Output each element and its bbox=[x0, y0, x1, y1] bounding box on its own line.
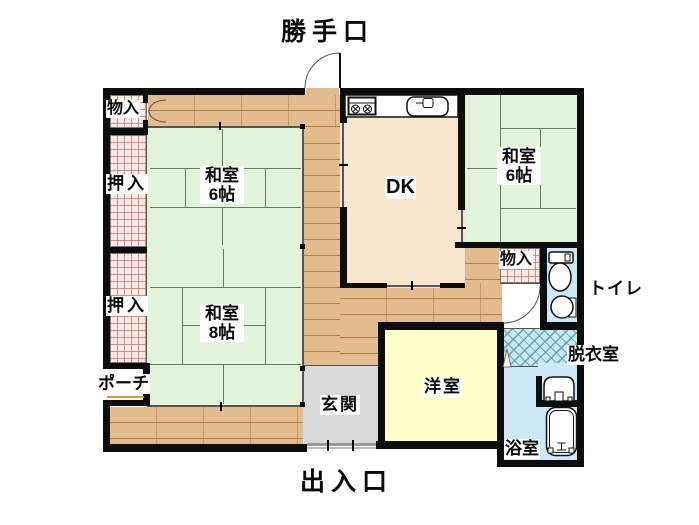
room-size: 6帖 bbox=[506, 166, 532, 185]
door-tick bbox=[219, 122, 221, 130]
wall-dk-bottom-a bbox=[340, 283, 387, 288]
door-tick bbox=[411, 281, 413, 290]
wall-basin-bottom bbox=[536, 400, 580, 407]
closet-lower-label: 押入 bbox=[106, 296, 148, 316]
wall-dk-left bbox=[340, 207, 347, 288]
wall-dk-right bbox=[458, 88, 465, 210]
entrance-sliding-door bbox=[307, 443, 376, 446]
room-size: 8帖 bbox=[209, 323, 235, 342]
corridor-genkan-floor bbox=[340, 322, 378, 365]
partition-line bbox=[147, 405, 303, 407]
wall-right bbox=[577, 88, 584, 467]
wall-storage-tl-right-a bbox=[143, 95, 148, 103]
wall-youshitsu-left bbox=[378, 322, 385, 449]
corridor-vertical-floor bbox=[303, 128, 340, 365]
wall-washitsu-right-bottom bbox=[455, 242, 584, 248]
washroom-door-swing-icon bbox=[503, 286, 540, 323]
storage-right-label: 物入 bbox=[499, 251, 533, 269]
corridor-mid-floor bbox=[340, 283, 502, 322]
wall-closet-divider bbox=[103, 247, 147, 253]
room-name: 和室 bbox=[205, 166, 239, 185]
engawa-bottom-floor bbox=[110, 407, 303, 444]
door-tick bbox=[339, 164, 348, 166]
wall-top-left bbox=[103, 88, 305, 95]
door-tick bbox=[457, 227, 466, 229]
corridor-right-floor bbox=[465, 248, 502, 283]
wall-bath-bottom bbox=[497, 460, 584, 467]
wall-bath-left bbox=[497, 322, 504, 467]
partition-line bbox=[500, 283, 540, 284]
closet-upper-label: 押入 bbox=[106, 174, 148, 194]
wall-storage-tl-bottom bbox=[103, 128, 147, 135]
porch-label: ポーチ bbox=[97, 374, 150, 394]
tatami-line bbox=[185, 168, 186, 207]
corridor-top-floor bbox=[148, 95, 340, 128]
junction-dot bbox=[300, 244, 305, 249]
tatami-line bbox=[467, 168, 500, 169]
tatami-line bbox=[222, 207, 223, 245]
wall-storage-tl-right-b bbox=[143, 120, 148, 135]
toilet-label: トイレ bbox=[588, 279, 644, 299]
washitsu-left-6-label: 和室 6帖 bbox=[200, 166, 244, 204]
partition-line bbox=[148, 126, 303, 128]
toilet-floor bbox=[547, 248, 577, 330]
tatami-line bbox=[150, 364, 301, 365]
junction-dot bbox=[300, 402, 305, 407]
genkan-label: 玄関 bbox=[320, 395, 360, 415]
door-tick bbox=[327, 440, 329, 451]
genkan-step-line bbox=[303, 365, 379, 366]
room-name: 和室 bbox=[205, 304, 239, 323]
wall-dk-left-stub bbox=[340, 95, 347, 123]
tatami-line bbox=[265, 287, 266, 364]
junction-dot bbox=[300, 366, 305, 371]
youshitsu-label: 洋室 bbox=[423, 377, 463, 397]
wall-basin-left bbox=[536, 376, 542, 403]
back-door-label: 勝手口 bbox=[281, 12, 374, 48]
tatami-line bbox=[223, 364, 224, 404]
storage-top-left-label: 物入 bbox=[106, 100, 140, 118]
tatami-line bbox=[223, 249, 224, 287]
floor-plan: 勝手口 出入口 物入 押入 押入 ポーチ 和室 6帖 和室 8帖 和室 6帖 D… bbox=[0, 0, 699, 525]
tatami-line bbox=[500, 128, 576, 129]
wall-bottom-youshitsu bbox=[376, 441, 504, 449]
main-entrance-label: 出入口 bbox=[300, 462, 393, 498]
washitsu-right-6-label: 和室 6帖 bbox=[497, 147, 541, 185]
washitsu-8-label: 和室 8帖 bbox=[200, 304, 244, 342]
porch-step-line bbox=[107, 396, 144, 398]
dk-label: DK bbox=[385, 176, 416, 199]
tatami-line bbox=[265, 168, 266, 207]
door-tick bbox=[352, 440, 354, 451]
wall-bottom-left bbox=[103, 444, 307, 452]
wall-youshitsu-top bbox=[378, 322, 504, 330]
wall-dk-bottom-b bbox=[440, 283, 465, 288]
tatami-line bbox=[500, 208, 576, 209]
sliding-door-line bbox=[387, 285, 440, 287]
dressing-room-label: 脱衣室 bbox=[567, 345, 620, 365]
back-door-swing-icon bbox=[305, 53, 340, 88]
back-door-threshold bbox=[306, 88, 339, 95]
wall-toilet-left bbox=[540, 248, 547, 330]
room-name: 和室 bbox=[502, 147, 536, 166]
tatami-line bbox=[222, 129, 223, 168]
door-tick bbox=[220, 402, 222, 411]
junction-dot bbox=[300, 124, 305, 129]
entrance-sliding-door-track bbox=[307, 447, 376, 449]
partition-line bbox=[504, 366, 538, 367]
bathroom-label: 浴室 bbox=[504, 439, 540, 459]
room-size: 6帖 bbox=[209, 185, 235, 204]
tatami-line bbox=[150, 287, 301, 288]
tatami-line bbox=[150, 207, 301, 208]
wall-toilet-bottom bbox=[540, 322, 578, 330]
